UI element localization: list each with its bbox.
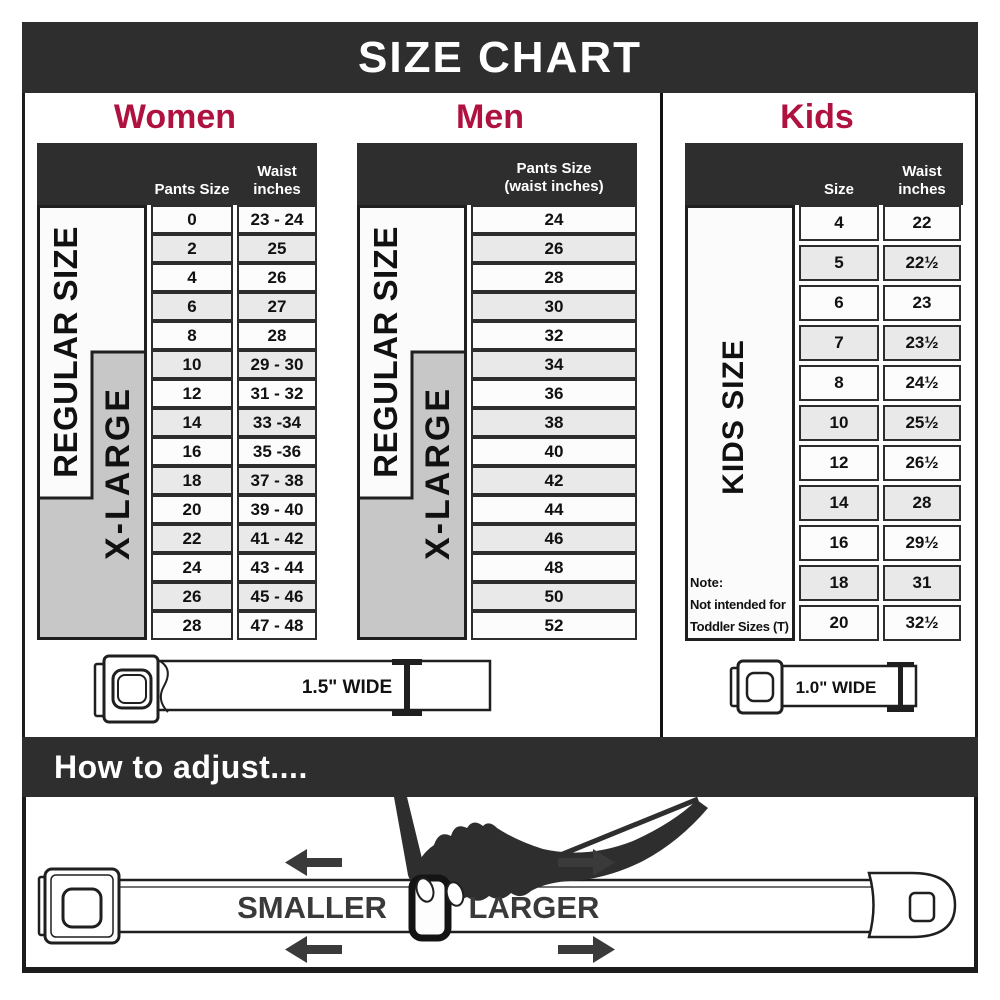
men-row-0-size-cell: 24: [471, 205, 637, 234]
kids-size-header: Size: [799, 181, 879, 200]
kids-row-2-waist-cell: 23: [883, 285, 961, 321]
men-pants-size-header: Pants Size (waist inches): [471, 160, 637, 198]
kids-row-1-size-cell: 5: [799, 245, 879, 281]
women-row-0-waist-cell: 23 - 24: [237, 205, 317, 234]
women-row-2-waist-cell: 26: [237, 263, 317, 292]
men-row-10-size-cell: 44: [471, 495, 637, 524]
measure-cap-bottom: [392, 710, 422, 716]
smaller-arrow-bottom: [285, 936, 342, 963]
kids-row-7-size-cell: 14: [799, 485, 879, 521]
kids-row-8-waist-cell: 29½: [883, 525, 961, 561]
kids-row-10-size-cell: 20: [799, 605, 879, 641]
kids-note-line2: Not intended for: [690, 597, 786, 612]
women-row-9-waist-cell: 37 - 38: [237, 466, 317, 495]
kids-waist-header: Waist inches: [883, 163, 961, 201]
kids-belt-illustration: 1.0" WIDE: [711, 651, 939, 723]
title-band: SIZE CHART: [22, 22, 978, 93]
women-x-large-label: X-LARGE: [99, 386, 137, 560]
measure-cap-top: [887, 662, 914, 667]
men-row-11-size-cell: 46: [471, 524, 637, 553]
men-size-category-strip: REGULAR SIZE X-LARGE: [357, 205, 467, 640]
women-row-1-size-cell: 2: [151, 234, 233, 263]
men-row-3-size-cell: 30: [471, 292, 637, 321]
women-men-belt-illustration: 1.5" WIDE: [80, 648, 500, 728]
kids-row-4-size-cell: 8: [799, 365, 879, 401]
kids-row-9-waist-cell: 31: [883, 565, 961, 601]
measure-cap-bottom: [887, 707, 914, 712]
kids-row-6-size-cell: 12: [799, 445, 879, 481]
women-row-14-size-cell: 28: [151, 611, 233, 640]
men-table-body: REGULAR SIZE X-LARGE 2426283032343638404…: [357, 205, 637, 640]
women-row-4-size-cell: 8: [151, 321, 233, 350]
kids-row-3-waist-cell: 23½: [883, 325, 961, 361]
women-regular-size-label: REGULAR SIZE: [47, 226, 84, 478]
women-row-7-size-cell: 14: [151, 408, 233, 437]
men-row-9-size-cell: 42: [471, 466, 637, 495]
women-table-header: Pants Size Waist inches: [37, 143, 317, 205]
men-table-header: Pants Size (waist inches): [357, 143, 637, 205]
kids-row-2-size-cell: 6: [799, 285, 879, 321]
kids-table-body: KIDS SIZE Note: Not intended for Toddler…: [685, 205, 963, 641]
adjust-belt-illustration: SMALLER LARGER: [26, 797, 974, 963]
men-row-5-size-cell: 34: [471, 350, 637, 379]
women-row-10-size-cell: 20: [151, 495, 233, 524]
belt-width-label-1-0: 1.0" WIDE: [796, 678, 877, 697]
women-row-5-size-cell: 10: [151, 350, 233, 379]
women-row-12-size-cell: 24: [151, 553, 233, 582]
kids-note-line3: Toddler Sizes (T): [690, 619, 789, 634]
larger-label: LARGER: [469, 890, 600, 925]
women-waist-header: Waist inches: [237, 163, 317, 201]
kids-column-title: Kids: [697, 95, 937, 139]
women-pants-size-header: Pants Size: [151, 181, 233, 200]
women-row-3-waist-cell: 27: [237, 292, 317, 321]
kids-row-4-waist-cell: 24½: [883, 365, 961, 401]
women-column-title: Women: [55, 95, 295, 139]
kids-row-8-size-cell: 16: [799, 525, 879, 561]
kids-size-table: Size Waist inches KIDS SIZE Note: Not in…: [685, 143, 963, 641]
smaller-arrow-top: [285, 849, 342, 876]
women-row-8-waist-cell: 35 -36: [237, 437, 317, 466]
women-row-3-size-cell: 6: [151, 292, 233, 321]
women-row-11-size-cell: 22: [151, 524, 233, 553]
kids-row-0-size-cell: 4: [799, 205, 879, 241]
kids-rows: 422522½623723½824½1025½1226½14281629½183…: [799, 205, 961, 641]
women-row-8-size-cell: 16: [151, 437, 233, 466]
women-row-6-size-cell: 12: [151, 379, 233, 408]
women-size-table: Pants Size Waist inches REGULAR SIZE X-L…: [37, 143, 317, 640]
kids-row-1-waist-cell: 22½: [883, 245, 961, 281]
men-x-large-label: X-LARGE: [419, 386, 457, 560]
women-row-12-waist-cell: 43 - 44: [237, 553, 317, 582]
kids-row-7-waist-cell: 28: [883, 485, 961, 521]
width-measure-bar: [404, 661, 410, 714]
women-table-body: REGULAR SIZE X-LARGE 023 - 2422542662782…: [37, 205, 317, 640]
men-row-2-size-cell: 28: [471, 263, 637, 292]
men-row-6-size-cell: 36: [471, 379, 637, 408]
adjust-heading-band: How to adjust....: [22, 737, 978, 797]
kids-size-vertical-label: KIDS SIZE: [717, 339, 750, 495]
women-row-7-waist-cell: 33 -34: [237, 408, 317, 437]
kids-table-header: Size Waist inches: [685, 143, 963, 205]
buckle-window: [63, 889, 101, 927]
women-row-14-waist-cell: 47 - 48: [237, 611, 317, 640]
kids-row-10-waist-cell: 32½: [883, 605, 961, 641]
men-column-title: Men: [370, 95, 610, 139]
men-size-table: Pants Size (waist inches) REGULAR SIZE X…: [357, 143, 637, 640]
kids-note-line1: Note:: [690, 575, 723, 590]
men-row-14-size-cell: 52: [471, 611, 637, 640]
kids-row-5-size-cell: 10: [799, 405, 879, 441]
width-measure-bar: [898, 665, 903, 709]
kids-row-3-size-cell: 7: [799, 325, 879, 361]
belt-width-label-1-5: 1.5" WIDE: [302, 677, 392, 698]
larger-arrow-bottom: [558, 936, 615, 963]
kids-row-5-waist-cell: 25½: [883, 405, 961, 441]
measure-cap-top: [392, 659, 422, 665]
tongue-slot: [910, 893, 934, 921]
men-row-1-size-cell: 26: [471, 234, 637, 263]
chart-main: Women Men Kids Pants Size Waist inches R…: [22, 93, 978, 737]
women-size-category-strip: REGULAR SIZE X-LARGE: [37, 205, 147, 640]
size-chart-page: SIZE CHART Women Men Kids Pants Size Wai…: [0, 0, 1000, 1000]
kids-row-9-size-cell: 18: [799, 565, 879, 601]
column-divider: [660, 93, 663, 737]
women-row-11-waist-cell: 41 - 42: [237, 524, 317, 553]
kids-row-6-waist-cell: 26½: [883, 445, 961, 481]
women-row-5-waist-cell: 29 - 30: [237, 350, 317, 379]
women-rows: 023 - 242254266278281029 - 301231 - 3214…: [151, 205, 317, 640]
kids-row-0-waist-cell: 22: [883, 205, 961, 241]
women-row-4-waist-cell: 28: [237, 321, 317, 350]
men-row-8-size-cell: 40: [471, 437, 637, 466]
women-row-9-size-cell: 18: [151, 466, 233, 495]
women-row-2-size-cell: 4: [151, 263, 233, 292]
men-row-12-size-cell: 48: [471, 553, 637, 582]
kids-size-category-strip: KIDS SIZE Note: Not intended for Toddler…: [685, 205, 795, 641]
adjust-illustration-box: SMALLER LARGER: [22, 797, 978, 973]
men-rows: 242628303234363840424446485052: [471, 205, 637, 640]
buckle-window: [747, 673, 773, 701]
men-regular-size-label: REGULAR SIZE: [367, 226, 404, 478]
men-row-7-size-cell: 38: [471, 408, 637, 437]
women-row-1-waist-cell: 25: [237, 234, 317, 263]
women-row-0-size-cell: 0: [151, 205, 233, 234]
men-row-13-size-cell: 50: [471, 582, 637, 611]
men-row-4-size-cell: 32: [471, 321, 637, 350]
women-row-13-waist-cell: 45 - 46: [237, 582, 317, 611]
women-row-10-waist-cell: 39 - 40: [237, 495, 317, 524]
page-title: SIZE CHART: [358, 33, 642, 83]
adjust-heading: How to adjust....: [54, 749, 308, 786]
women-row-6-waist-cell: 31 - 32: [237, 379, 317, 408]
smaller-label: SMALLER: [237, 890, 387, 925]
women-row-13-size-cell: 26: [151, 582, 233, 611]
